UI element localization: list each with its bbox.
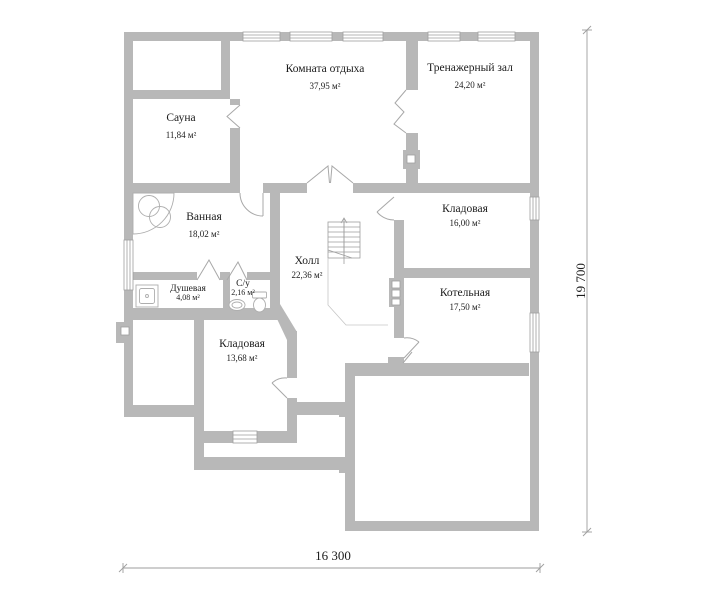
dimension-line-bottom	[119, 563, 544, 573]
vent-square	[392, 299, 400, 305]
wall-storage-bottom-a	[204, 431, 233, 443]
window	[124, 240, 133, 290]
stairs-direction-arrow	[341, 218, 347, 264]
wall-storage-bottom-b	[257, 431, 297, 443]
fixtures	[133, 193, 267, 312]
dimension-width-label: 16 300	[303, 548, 363, 564]
wall-bigroom-stub-b	[339, 460, 346, 473]
door-sauna	[227, 105, 240, 128]
door-hall-left-leaf	[307, 166, 330, 183]
sink	[229, 300, 245, 311]
floor-plan-drawing	[0, 0, 714, 600]
shower-tray	[136, 285, 158, 307]
wall-bigroom-bottom	[345, 521, 539, 531]
door-storage-small	[272, 378, 287, 398]
wall-bath-bottom-b	[220, 272, 227, 280]
wall-storage16-boiler	[404, 268, 530, 278]
stairs	[328, 218, 388, 325]
window	[428, 32, 460, 41]
wall-restroom-gym-a	[406, 41, 418, 90]
wall-hall-right-b	[394, 307, 404, 338]
floor-plan: Комната отдыха 37,95 м² Тренажерный зал …	[0, 0, 714, 600]
walls	[116, 32, 539, 531]
window	[530, 313, 539, 352]
wall-lobby-bottom	[287, 402, 345, 415]
window	[243, 32, 280, 41]
wall-bigroom-stub-a	[339, 403, 346, 417]
wall-bigroom-left	[345, 363, 355, 531]
wall-bigroom-top	[345, 363, 529, 376]
wall-bath-bottom-c	[247, 272, 270, 280]
flue-block-bottom	[388, 357, 404, 363]
vent-square	[392, 281, 400, 288]
vent-square	[392, 290, 400, 297]
dimension-height-label: 19 700	[573, 251, 589, 311]
door-boiler	[404, 338, 419, 358]
wall-right	[530, 32, 539, 531]
wall-hall-right-a	[394, 220, 404, 278]
window	[343, 32, 383, 41]
corner-bathtub	[133, 193, 174, 234]
vent-square	[121, 327, 129, 335]
window	[233, 431, 257, 443]
wall-bath-hall	[270, 193, 280, 313]
door-storage-large	[377, 197, 394, 220]
wall-left	[124, 32, 133, 417]
dimension-lines	[119, 26, 592, 573]
wall-main-horiz-c	[353, 183, 539, 193]
wall-bath-bottom-a	[133, 272, 197, 280]
window	[478, 32, 515, 41]
stairwell-outline	[328, 258, 388, 325]
door-shower	[197, 260, 220, 280]
wall-storage-right-a	[287, 331, 297, 378]
wall-topleftroom-right	[221, 41, 230, 90]
wall-topleftroom-bottom	[124, 90, 230, 99]
door-restroom-gym	[394, 90, 406, 133]
door-bathroom	[240, 193, 263, 216]
wall-main-horiz-b	[263, 183, 307, 193]
wall-main-horiz-a	[124, 183, 240, 193]
wall-bottomleft	[124, 405, 204, 417]
wall-long-bottom	[194, 457, 355, 470]
wall-storage-left	[194, 320, 204, 470]
door-hall-right-leaf	[331, 166, 354, 183]
wall-sauna-right-a	[230, 99, 240, 105]
toilet	[253, 292, 267, 312]
window	[530, 197, 539, 220]
vent-square	[407, 155, 415, 163]
window	[290, 32, 332, 41]
